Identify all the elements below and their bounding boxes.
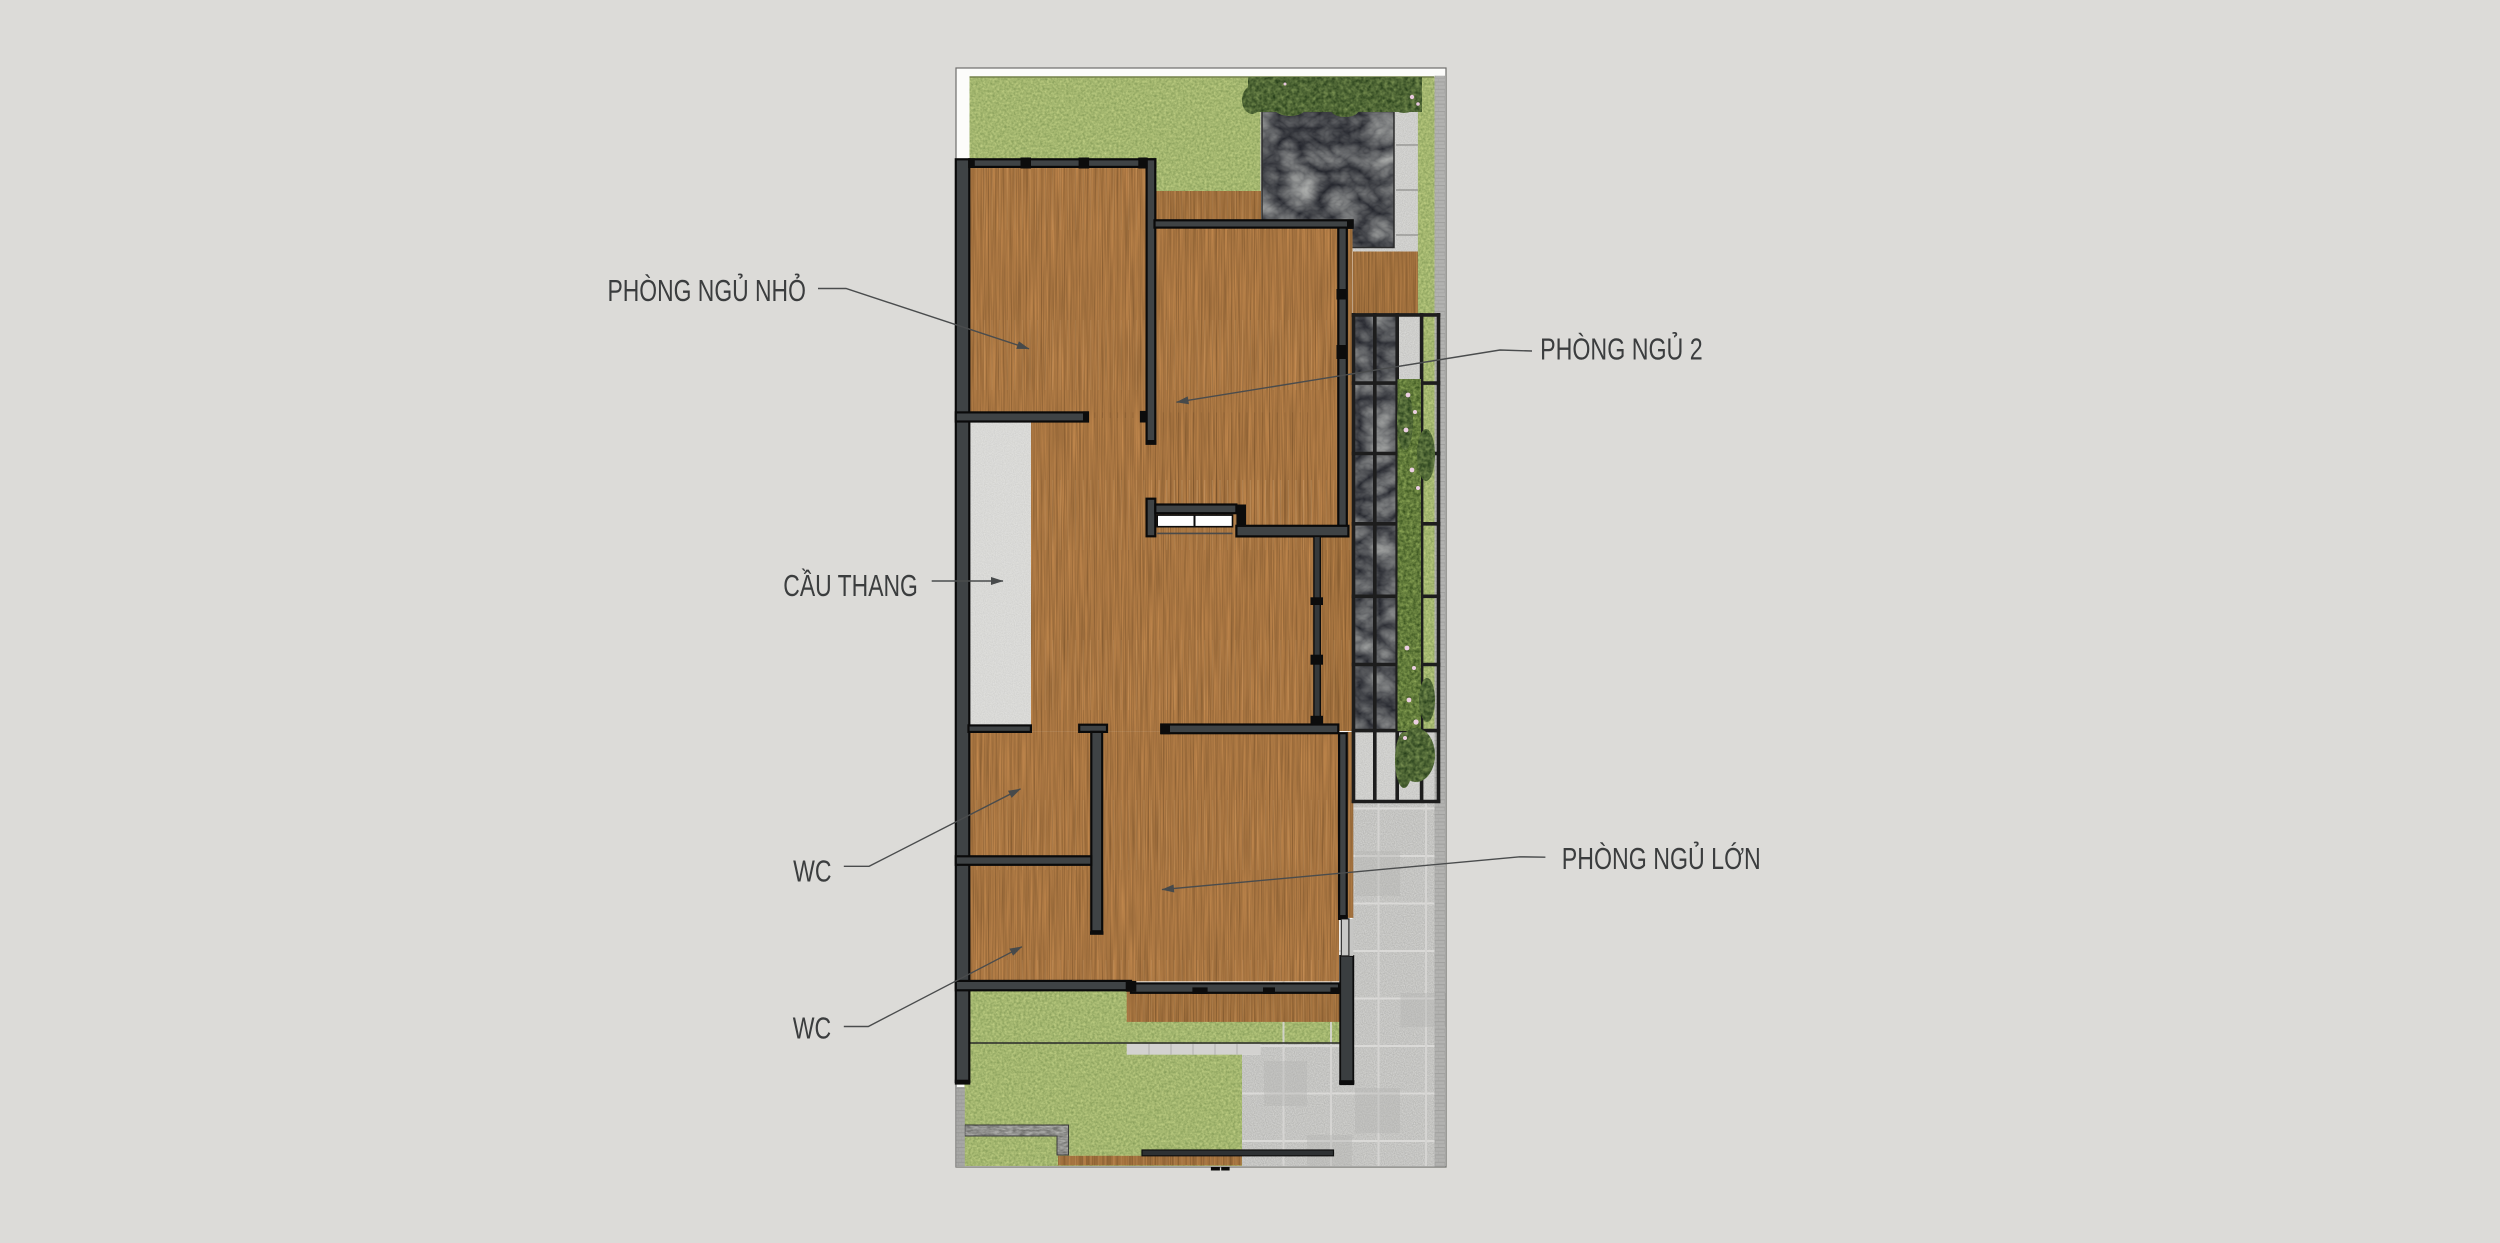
svg-text:PHÒNG NGỦ NHỎ: PHÒNG NGỦ NHỎ [608,272,806,308]
svg-text:WC: WC [793,855,831,889]
svg-text:CẦU THANG: CẦU THANG [783,568,918,603]
svg-text:WC: WC [793,1012,831,1046]
svg-text:PHÒNG NGỦ LỚN: PHÒNG NGỦ LỚN [1562,840,1761,876]
svg-text:PHÒNG NGỦ 2: PHÒNG NGỦ 2 [1540,331,1703,367]
